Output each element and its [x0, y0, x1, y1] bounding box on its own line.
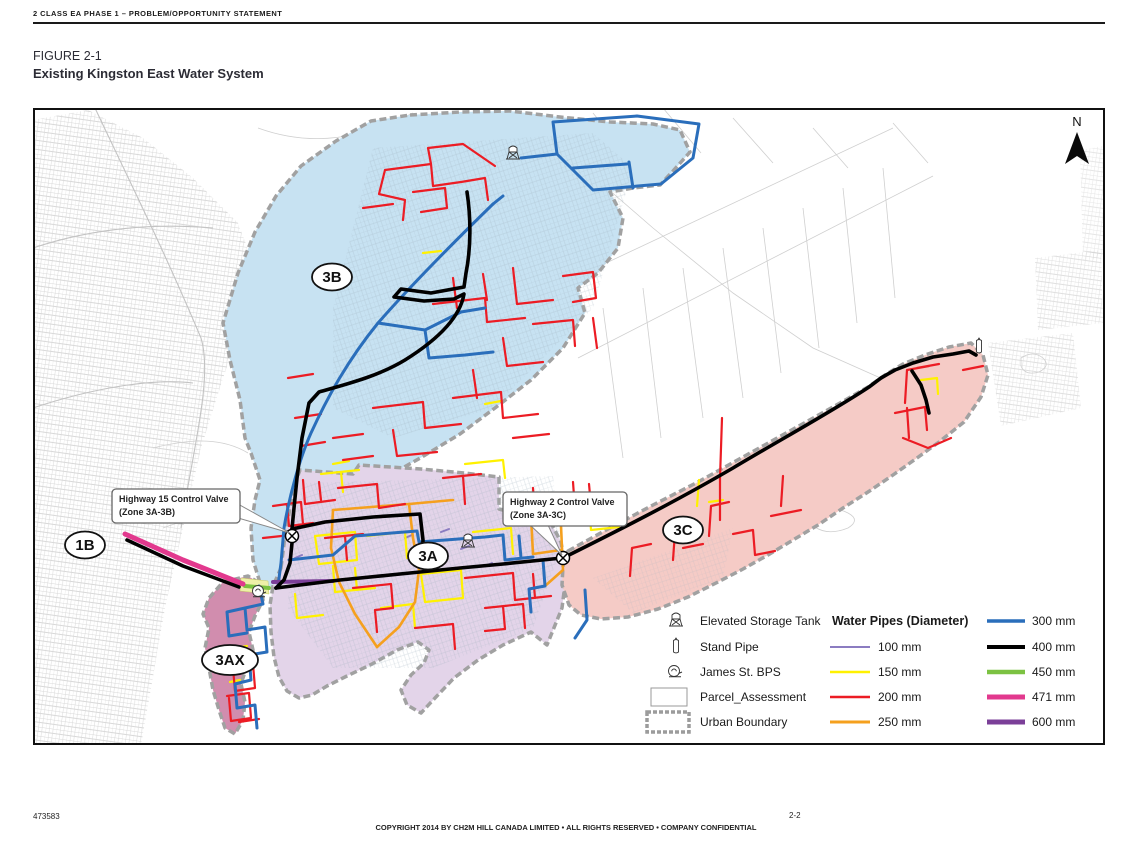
- header-rule: [33, 22, 1105, 24]
- stand-pipe-icon-3c: [977, 338, 982, 353]
- svg-text:3A: 3A: [418, 548, 437, 565]
- legend-label-400mm: 400 mm: [1032, 640, 1075, 654]
- figure-label: FIGURE 2-1: [33, 49, 102, 63]
- legend-label-parcel: Parcel_Assessment: [700, 690, 807, 704]
- highway-2-valve-icon: [557, 552, 570, 565]
- zone-label-3a: 3A: [408, 543, 448, 570]
- parcel-assessment-swatch: [651, 688, 687, 706]
- svg-text:1B: 1B: [75, 537, 94, 554]
- legend-label-250mm: 250 mm: [878, 715, 921, 729]
- urban-boundary-swatch: [647, 712, 689, 732]
- report-page: 2 CLASS EA PHASE 1 – PROBLEM/OPPORTUNITY…: [0, 0, 1132, 857]
- legend-label-150mm: 150 mm: [878, 665, 921, 679]
- legend-label-200mm: 200 mm: [878, 690, 921, 704]
- svg-text:Highway 15 Control Valve: Highway 15 Control Valve: [119, 494, 229, 504]
- figure-title: Existing Kingston East Water System: [33, 66, 264, 81]
- map-svg: Highway 15 Control Valve (Zone 3A-3B) Hi…: [33, 108, 1105, 745]
- legend-label-standpipe: Stand Pipe: [700, 640, 759, 654]
- zone-label-3b: 3B: [312, 264, 352, 291]
- svg-text:(Zone 3A-3C): (Zone 3A-3C): [510, 510, 566, 520]
- svg-text:(Zone 3A-3B): (Zone 3A-3B): [119, 507, 175, 517]
- footer-page-number: 2-2: [789, 811, 801, 820]
- svg-text:3C: 3C: [673, 522, 692, 539]
- legend-label-471mm: 471 mm: [1032, 690, 1075, 704]
- legend-label-urban: Urban Boundary: [700, 715, 787, 729]
- zone-label-3ax: 3AX: [202, 645, 258, 675]
- map-figure: Highway 15 Control Valve (Zone 3A-3B) Hi…: [33, 108, 1105, 745]
- svg-text:3AX: 3AX: [215, 652, 244, 669]
- legend-label-300mm: 300 mm: [1032, 614, 1075, 628]
- svg-text:3B: 3B: [322, 269, 341, 286]
- legend-pipes-title: Water Pipes (Diameter): [832, 614, 968, 628]
- legend-label-bps: James St. BPS: [700, 665, 781, 679]
- footer-doc-number: 473583: [33, 812, 60, 821]
- svg-text:Highway 2 Control Valve: Highway 2 Control Valve: [510, 497, 615, 507]
- footer-copyright: COPYRIGHT 2014 BY CH2M HILL CANADA LIMIT…: [0, 823, 1132, 832]
- stand-pipe-icon: [674, 638, 679, 653]
- zone-label-1b: 1B: [65, 532, 105, 559]
- legend-label-450mm: 450 mm: [1032, 665, 1075, 679]
- elevated-storage-tank-icon: [669, 613, 683, 626]
- legend-label-600mm: 600 mm: [1032, 715, 1075, 729]
- running-header: 2 CLASS EA PHASE 1 – PROBLEM/OPPORTUNITY…: [33, 9, 282, 18]
- map-legend: Elevated Storage Tank Stand Pipe James S…: [647, 613, 1075, 732]
- north-arrow: N: [1065, 114, 1089, 164]
- zone-label-3c: 3C: [663, 517, 703, 544]
- legend-label-100mm: 100 mm: [878, 640, 921, 654]
- legend-label-tank: Elevated Storage Tank: [700, 614, 822, 628]
- james-st-bps-icon: [669, 666, 683, 677]
- svg-text:N: N: [1072, 114, 1081, 129]
